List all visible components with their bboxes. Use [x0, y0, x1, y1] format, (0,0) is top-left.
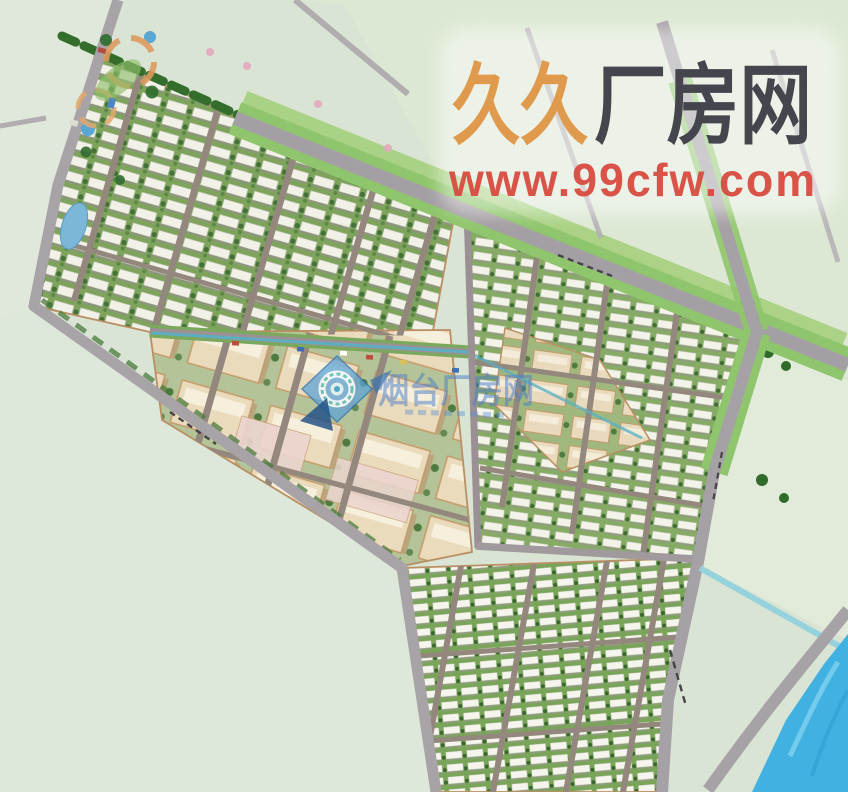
center-watermark-text: 烟台厂房网 [378, 372, 534, 411]
brand-text-orange: 久久 [452, 56, 588, 155]
brand-text-dark: 厂房网 [594, 56, 812, 155]
master-plan-map: 烟台厂房网 久久 厂房网 www.99cfw.com [0, 0, 848, 792]
logo-hub-dot-icon [334, 386, 340, 392]
factory-zone-south [402, 558, 695, 792]
top-right-watermark: 久久 厂房网 www.99cfw.com [440, 28, 840, 214]
brand-url-text: www.99cfw.com [448, 154, 817, 206]
